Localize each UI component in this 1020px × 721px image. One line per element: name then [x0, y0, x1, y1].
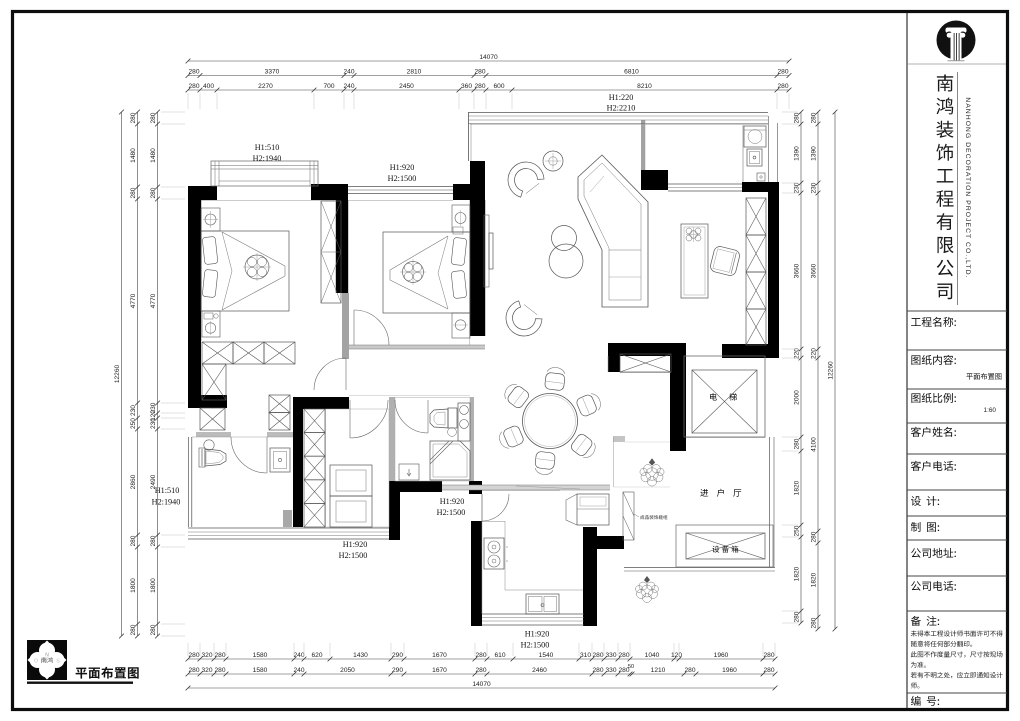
svg-text:280: 280 — [794, 438, 801, 449]
svg-text:4770: 4770 — [130, 293, 137, 308]
svg-text:50: 50 — [628, 664, 634, 670]
svg-text:320: 320 — [201, 667, 212, 674]
svg-text:220: 220 — [794, 348, 801, 359]
svg-text:280: 280 — [618, 652, 629, 659]
svg-text:12260: 12260 — [828, 361, 835, 380]
svg-text:250: 250 — [130, 418, 137, 429]
svg-text:H1:510: H1:510 — [155, 486, 180, 495]
svg-text:12260: 12260 — [114, 365, 121, 384]
svg-text:1820: 1820 — [794, 480, 801, 495]
svg-text:H1:920: H1:920 — [343, 540, 368, 549]
svg-text:230: 230 — [811, 182, 818, 193]
svg-text:H2:1500: H2:1500 — [388, 174, 417, 183]
svg-text:280: 280 — [763, 652, 774, 659]
svg-text:NANHONG DECORATION PROJECT CO.: NANHONG DECORATION PROJECT CO.,LTD. — [964, 97, 971, 278]
svg-text:330: 330 — [605, 652, 616, 659]
svg-text:230: 230 — [150, 418, 157, 429]
svg-text:3660: 3660 — [794, 263, 801, 278]
svg-text:1540: 1540 — [539, 652, 554, 659]
svg-text:1820: 1820 — [811, 572, 818, 587]
svg-text:280: 280 — [130, 112, 137, 123]
svg-text:2050: 2050 — [340, 667, 355, 674]
svg-text:3370: 3370 — [265, 68, 280, 75]
svg-text:610: 610 — [494, 652, 505, 659]
svg-text:280: 280 — [592, 652, 603, 659]
svg-text:280: 280 — [794, 112, 801, 123]
svg-text:280: 280 — [214, 667, 225, 674]
svg-text:360: 360 — [461, 83, 472, 90]
svg-text:330: 330 — [605, 667, 616, 674]
svg-text:280: 280 — [763, 667, 774, 674]
svg-text:280: 280 — [188, 68, 199, 75]
svg-text:240: 240 — [293, 652, 304, 659]
svg-text:600: 600 — [493, 83, 504, 90]
svg-text:120: 120 — [671, 652, 682, 659]
svg-text:700: 700 — [323, 83, 334, 90]
svg-text:H2:1940: H2:1940 — [253, 154, 282, 163]
svg-text:1430: 1430 — [353, 652, 368, 659]
svg-text:280: 280 — [474, 68, 485, 75]
svg-text:4770: 4770 — [150, 293, 157, 308]
svg-text:280: 280 — [130, 624, 137, 635]
svg-text:280: 280 — [130, 535, 137, 546]
svg-text:280: 280 — [130, 187, 137, 198]
svg-text:1800: 1800 — [150, 578, 157, 593]
svg-text:280: 280 — [475, 652, 486, 659]
svg-text:H2:1940: H2:1940 — [152, 498, 181, 507]
svg-text:1480: 1480 — [150, 148, 157, 163]
svg-text:1800: 1800 — [130, 578, 137, 593]
svg-text:280: 280 — [188, 667, 199, 674]
svg-text:280: 280 — [777, 83, 788, 90]
svg-text:280: 280 — [150, 112, 157, 123]
svg-text:H1:920: H1:920 — [440, 497, 465, 506]
svg-text:1580: 1580 — [253, 667, 268, 674]
svg-text:1040: 1040 — [645, 652, 660, 659]
svg-text:250: 250 — [794, 525, 801, 536]
svg-text:280: 280 — [475, 667, 486, 674]
svg-text:280: 280 — [150, 187, 157, 198]
svg-text:2860: 2860 — [130, 474, 137, 489]
svg-text:310: 310 — [580, 652, 591, 659]
svg-text:280: 280 — [811, 531, 818, 542]
svg-text:1580: 1580 — [253, 652, 268, 659]
svg-text:14070: 14070 — [472, 681, 491, 688]
svg-text:4100: 4100 — [811, 437, 818, 452]
svg-text:290: 290 — [392, 652, 403, 659]
svg-text:220: 220 — [811, 348, 818, 359]
svg-text:240: 240 — [293, 667, 304, 674]
svg-text:1:60: 1:60 — [984, 407, 997, 414]
svg-text:1210: 1210 — [651, 667, 666, 674]
svg-text:6810: 6810 — [624, 68, 639, 75]
svg-text:N: N — [45, 653, 49, 659]
svg-text:230: 230 — [794, 182, 801, 193]
svg-text:1960: 1960 — [714, 652, 729, 659]
svg-text:280: 280 — [777, 68, 788, 75]
svg-text:2450: 2450 — [399, 83, 414, 90]
svg-text:2490: 2490 — [150, 474, 157, 489]
svg-text:14070: 14070 — [479, 54, 498, 61]
svg-text:1670: 1670 — [432, 667, 447, 674]
svg-text:280: 280 — [811, 112, 818, 123]
svg-text:280: 280 — [150, 624, 157, 635]
svg-text:1820: 1820 — [794, 566, 801, 581]
svg-text:280: 280 — [811, 617, 818, 628]
svg-text:280: 280 — [188, 652, 199, 659]
svg-text:H2:1500: H2:1500 — [521, 641, 550, 650]
svg-text:H1:920: H1:920 — [390, 163, 415, 172]
svg-text:2270: 2270 — [258, 83, 273, 90]
svg-text:320: 320 — [201, 652, 212, 659]
svg-text:280: 280 — [474, 83, 485, 90]
svg-text:280: 280 — [188, 83, 199, 90]
svg-text:2810: 2810 — [407, 68, 422, 75]
svg-text:1390: 1390 — [811, 146, 818, 161]
svg-text:2460: 2460 — [532, 667, 547, 674]
svg-text:8210: 8210 — [637, 83, 652, 90]
svg-text:3660: 3660 — [811, 263, 818, 278]
svg-text:O: O — [34, 659, 38, 665]
svg-text:280: 280 — [684, 667, 695, 674]
svg-text:H1:920: H1:920 — [525, 630, 550, 639]
svg-text:280: 280 — [150, 535, 157, 546]
svg-text:H1:510: H1:510 — [255, 143, 280, 152]
svg-text:H2:1500: H2:1500 — [339, 551, 368, 560]
svg-text:H2:1500: H2:1500 — [437, 508, 466, 517]
svg-text:240: 240 — [343, 83, 354, 90]
svg-text:H2:2210: H2:2210 — [607, 104, 636, 113]
svg-text:1670: 1670 — [432, 652, 447, 659]
svg-text:230: 230 — [130, 405, 137, 416]
svg-text:2000: 2000 — [794, 390, 801, 405]
svg-text:280: 280 — [794, 611, 801, 622]
svg-text:620: 620 — [311, 652, 322, 659]
svg-text:280: 280 — [592, 667, 603, 674]
svg-text:H1:220: H1:220 — [609, 93, 634, 102]
svg-text:280: 280 — [214, 652, 225, 659]
svg-text:1390: 1390 — [794, 146, 801, 161]
svg-text:1480: 1480 — [130, 148, 137, 163]
svg-text:1960: 1960 — [722, 667, 737, 674]
svg-text:240: 240 — [343, 68, 354, 75]
svg-text:290: 290 — [392, 667, 403, 674]
svg-text:400: 400 — [203, 83, 214, 90]
